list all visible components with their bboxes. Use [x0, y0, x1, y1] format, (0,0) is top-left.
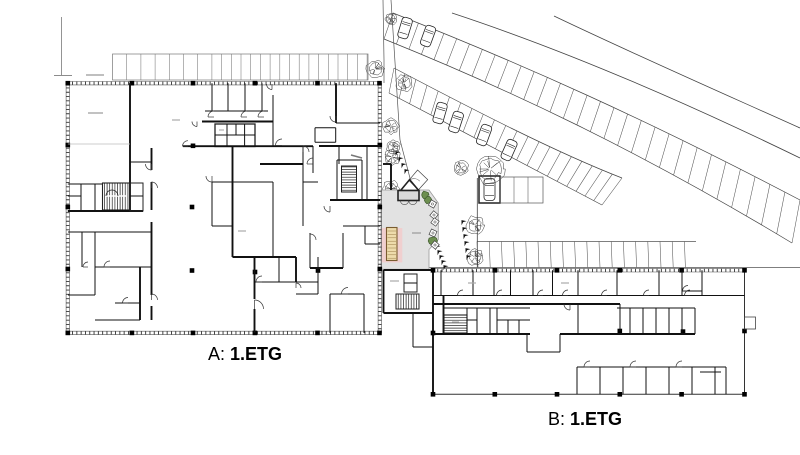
svg-text:A: 1.ETG: A: 1.ETG: [208, 344, 282, 364]
svg-text:B: 1.ETG: B: 1.ETG: [548, 409, 622, 429]
